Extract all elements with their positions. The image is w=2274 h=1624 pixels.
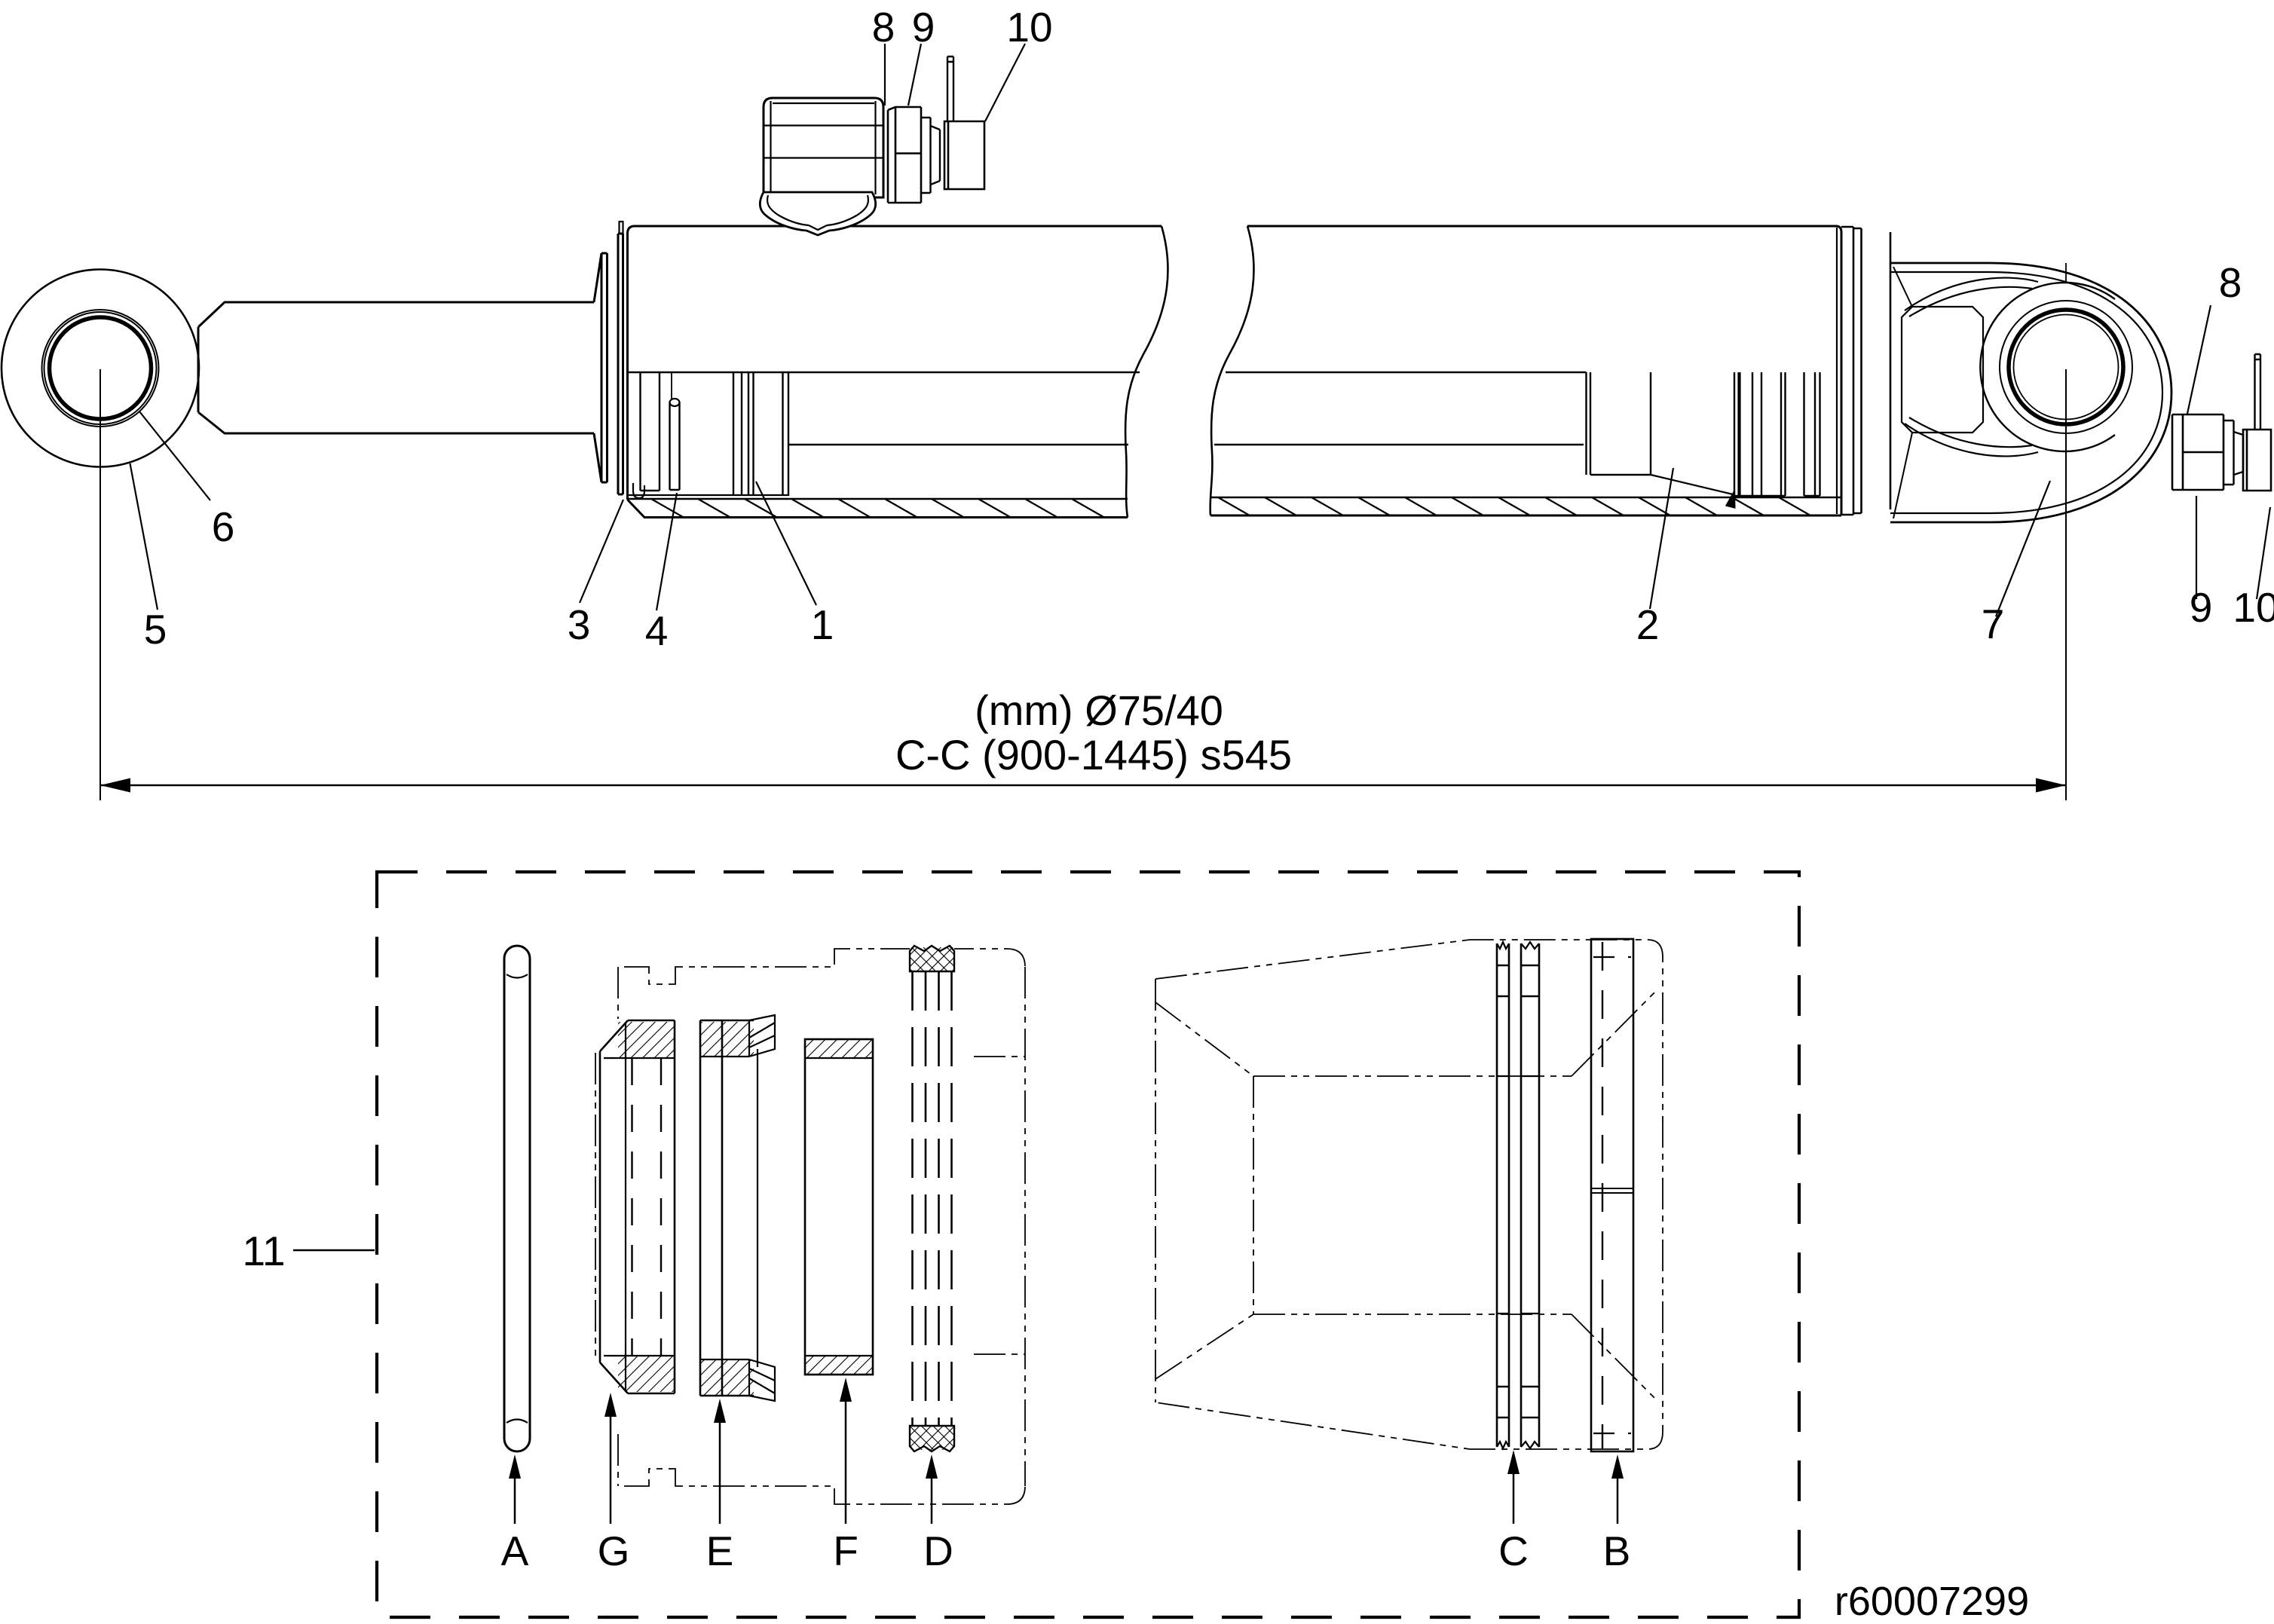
svg-text:A: A [501,1528,529,1574]
svg-text:11: 11 [242,1228,285,1274]
svg-text:F: F [833,1528,858,1574]
svg-text:G: G [598,1528,630,1574]
svg-text:C: C [1498,1528,1529,1574]
svg-text:9: 9 [2190,584,2213,631]
svg-text:B: B [1603,1528,1631,1574]
svg-text:4: 4 [645,607,669,654]
svg-text:10: 10 [1006,4,1052,50]
svg-text:1: 1 [811,601,834,648]
svg-text:8: 8 [872,4,895,50]
svg-text:2: 2 [1636,601,1660,648]
svg-text:3: 3 [568,601,591,648]
svg-text:E: E [706,1528,734,1574]
svg-text:5: 5 [144,606,167,653]
svg-text:6: 6 [212,503,235,550]
svg-text:C-C (900-1445) s545: C-C (900-1445) s545 [895,731,1292,778]
svg-text:D: D [923,1528,953,1574]
svg-text:8: 8 [2219,259,2242,306]
svg-text:r60007299: r60007299 [1835,1579,2029,1624]
svg-text:7: 7 [1982,601,2005,647]
svg-text:10: 10 [2233,584,2274,631]
svg-text:(mm) Ø75/40: (mm) Ø75/40 [975,687,1223,734]
svg-text:9: 9 [912,4,935,50]
